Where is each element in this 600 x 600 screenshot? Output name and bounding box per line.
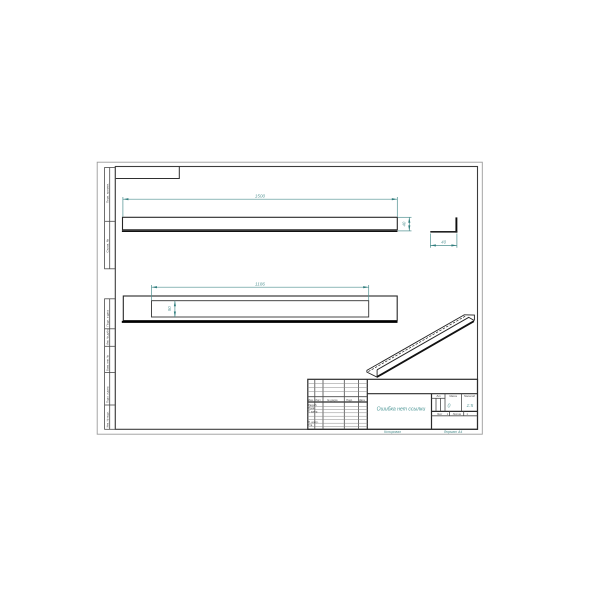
svg-text:Лист: Лист (437, 413, 443, 416)
svg-text:90: 90 (167, 306, 172, 311)
svg-text:Масса: Масса (450, 395, 458, 398)
svg-text:40: 40 (441, 240, 446, 245)
svg-text:Взам. инв. №: Взам. инв. № (106, 355, 110, 371)
svg-text:Перв. примен.: Перв. примен. (106, 183, 110, 203)
svg-text:Инв. № подл.: Инв. № подл. (106, 411, 110, 427)
svg-text:Масштаб: Масштаб (464, 395, 475, 398)
svg-text:0: 0 (448, 403, 451, 409)
svg-text:Листов: Листов (453, 413, 462, 416)
svg-text:Лит.: Лит. (437, 395, 442, 398)
svg-text:1:5: 1:5 (466, 403, 473, 409)
svg-text:40: 40 (401, 221, 406, 226)
svg-text:1500: 1500 (255, 194, 266, 199)
svg-text:Подп. и дата: Подп. и дата (106, 386, 110, 403)
svg-text:Копировал: Копировал (384, 430, 401, 434)
svg-text:Ошибка нет ссылки: Ошибка нет ссылки (377, 407, 426, 413)
svg-text:Изм.: Изм. (308, 399, 314, 402)
svg-text:Формат А4: Формат А4 (444, 430, 463, 434)
svg-text:Справ. №: Справ. № (106, 238, 110, 252)
svg-text:Подп.: Подп. (346, 399, 353, 402)
svg-text:Подп. и дата: Подп. и дата (106, 310, 110, 327)
svg-text:№ докум.: № докум. (327, 399, 338, 402)
svg-text:1186: 1186 (255, 282, 265, 287)
svg-text:Т. контр.: Т. контр. (308, 410, 318, 413)
svg-text:Инв. № дубл.: Инв. № дубл. (106, 329, 110, 345)
svg-text:Лист: Лист (315, 399, 321, 402)
svg-text:Дата: Дата (359, 399, 365, 402)
svg-text:Утв.: Утв. (308, 424, 313, 427)
